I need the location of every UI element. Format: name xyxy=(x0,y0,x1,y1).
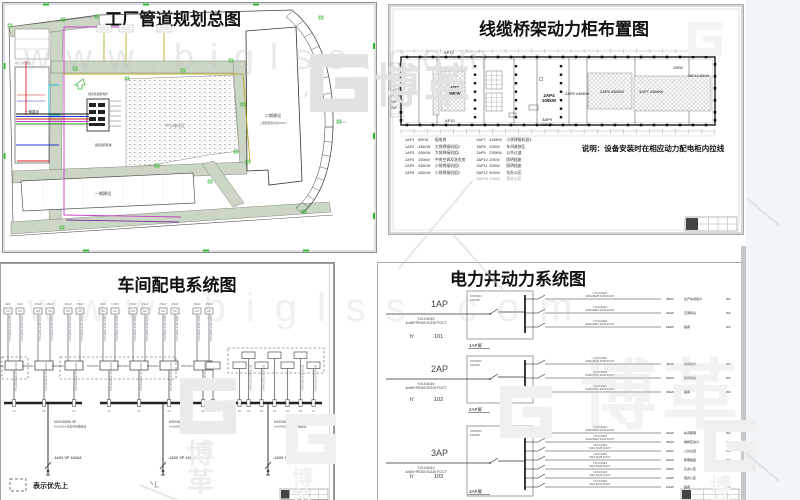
svg-text:103: 103 xyxy=(434,474,443,480)
svg-text:W6: W6 xyxy=(726,476,731,480)
svg-text:表示优先上: 表示优先上 xyxy=(32,481,68,490)
svg-text:W2: W2 xyxy=(726,376,731,380)
svg-text:In=1600A 密集母线槽连接: In=1600A 密集母线槽连接 xyxy=(274,425,306,429)
svg-text:4x400+PE400 SC100 FC/CT: 4x400+PE400 SC100 FC/CT xyxy=(405,386,446,390)
svg-text:YJV-4x25+1x16 SC40: YJV-4x25+1x16 SC40 xyxy=(8,315,12,341)
svg-text:45kW: 45kW xyxy=(666,362,674,366)
svg-text:NSX630N: NSX630N xyxy=(470,429,482,433)
vertical-scrollbar[interactable] xyxy=(741,246,746,500)
svg-text:YJV-4x25+1x16 SC40: YJV-4x25+1x16 SC40 xyxy=(68,315,72,341)
svg-text:In=1600A 密集母线槽连接: In=1600A 密集母线槽连接 xyxy=(54,425,86,429)
svg-text:2AP5 436KW: 2AP5 436KW xyxy=(565,91,589,96)
svg-text:YJV-0.6/1kV: YJV-0.6/1kV xyxy=(593,319,608,323)
svg-text:W2: W2 xyxy=(247,410,251,413)
svg-text:YJV-4x120+1x70 SC100: YJV-4x120+1x70 SC100 xyxy=(139,362,143,391)
svg-text:18kW: 18kW xyxy=(666,325,674,329)
power-shaft-shapes: 1APYJV-0.6/1kV4x400+PE400 SC100 FC/CTh'1… xyxy=(386,291,739,500)
svg-text:4x50+PE25 SC50 FC/CT: 4x50+PE25 SC50 FC/CT xyxy=(585,294,614,298)
svg-text:4x400+PE400 SC100 FC/CT: 4x400+PE400 SC100 FC/CT xyxy=(405,321,446,325)
svg-text:YJV-4x25+1x16 SC40: YJV-4x25+1x16 SC40 xyxy=(163,315,167,341)
svg-text:3AP7 436KW: 3AP7 436KW xyxy=(639,89,663,94)
svg-text:W1: W1 xyxy=(107,410,111,413)
svg-text:综合管廊配电间: 综合管廊配电间 xyxy=(88,92,108,96)
svg-text:TX5.0: TX5.0 xyxy=(303,90,309,98)
svg-text:3AP13 40KW: 3AP13 40KW xyxy=(688,74,710,78)
svg-text:W6: W6 xyxy=(299,410,303,413)
svg-text:h': h' xyxy=(410,334,414,340)
svg-text:-1600 3P 1600A: -1600 3P 1600A xyxy=(53,455,82,460)
svg-text:YJV-0.6/1kV: YJV-0.6/1kV xyxy=(593,305,608,309)
svg-text:h': h' xyxy=(410,474,414,480)
svg-text:YJV-4x25+1x16 SC40: YJV-4x25+1x16 SC40 xyxy=(145,315,149,341)
svg-text:4x25+PE16 SC32 FC/CT: 4x25+PE16 SC32 FC/CT xyxy=(585,437,614,441)
svg-text:一期建设: 一期建设 xyxy=(95,190,111,196)
svg-text:公共过道: 公共过道 xyxy=(684,448,696,453)
svg-text:25kW: 25kW xyxy=(141,302,149,306)
svg-text:YJV-4x120+1x70 SC100: YJV-4x120+1x70 SC100 xyxy=(109,362,113,391)
svg-text:20kW: 20kW xyxy=(666,458,674,462)
svg-text:备用: 备用 xyxy=(684,324,690,329)
svg-text:新风机房: 新风机房 xyxy=(684,375,696,380)
legend-cell: 436KW xyxy=(418,170,435,177)
svg-text:2AP: 2AP xyxy=(431,364,448,374)
svg-text:630A/3P: 630A/3P xyxy=(470,363,480,367)
svg-text:W4: W4 xyxy=(201,410,205,413)
screenshot-root: 工厂管道规划总图 中心绿化区一期建设地下室范围线二期建设二期配套用房约750m²… xyxy=(0,0,800,500)
svg-text:照明插座: 照明插座 xyxy=(684,457,696,462)
svg-text:20kW: 20kW xyxy=(666,449,674,453)
svg-text:W1: W1 xyxy=(726,297,731,301)
svg-text:NSX1600N 3P: NSX1600N 3P xyxy=(54,420,77,424)
cable-tray-drawing: 线缆桥架动力柜布置图 说明：设备安装时在相应动力配电柜内拉线 AP11AP101… xyxy=(389,5,743,234)
svg-text:NSX1600N 3P: NSX1600N 3P xyxy=(169,420,192,424)
svg-text:30kW: 30kW xyxy=(666,431,674,435)
svg-text:YJV-4x120+1x70 SC100: YJV-4x120+1x70 SC100 xyxy=(14,362,18,391)
svg-text:4x25+PE16 SC32 FC/CT: 4x25+PE16 SC32 FC/CT xyxy=(585,322,614,326)
svg-text:25kW: 25kW xyxy=(666,440,674,444)
svg-text:NSX250N: NSX250N xyxy=(52,364,64,368)
svg-text:1AP1: 1AP1 xyxy=(391,88,399,92)
svg-text:W7: W7 xyxy=(726,485,731,489)
svg-text:5x10 SC20 FC/CT: 5x10 SC20 FC/CT xyxy=(589,473,611,477)
svg-text:-1600 3P 160A: -1600 3P 160A xyxy=(168,455,195,460)
distribution-title: 车间配电系统图 xyxy=(118,275,237,295)
svg-text:6kW: 6kW xyxy=(17,302,23,306)
svg-text:一期建设: 一期建设 xyxy=(25,109,39,114)
svg-text:102: 102 xyxy=(434,397,443,403)
svg-text:NSX250N: NSX250N xyxy=(181,364,193,368)
svg-text:2AP6 436KW: 2AP6 436KW xyxy=(600,89,624,94)
svg-text:YJV-0.6/1kV: YJV-0.6/1kV xyxy=(593,479,608,483)
panel-workshop-distribution: 车间配电系统图 6kWYJV-4x25+1x16 SC406kWYJV-4x25… xyxy=(0,262,335,500)
svg-text:30kW: 30kW xyxy=(666,311,674,315)
legend-col-right: 3AP7436KW小袋焊接机组33AP820KW车间维修区3AP9235KW公共… xyxy=(476,137,531,183)
svg-text:YJV-0.6/1kV: YJV-0.6/1kV xyxy=(593,425,608,429)
svg-text:YJV-4x25+1x16 SC40: YJV-4x25+1x16 SC40 xyxy=(197,315,201,341)
svg-text:中心绿化区: 中心绿化区 xyxy=(165,122,185,128)
legend-cell: 小袋焊接机组2 xyxy=(435,170,460,177)
svg-text:5x16 SC25 FC/CT: 5x16 SC25 FC/CT xyxy=(589,455,611,459)
svg-text:In=1600A 密集母线槽连接: In=1600A 密集母线槽连接 xyxy=(169,425,201,429)
svg-text:YJV-0.6/1kV: YJV-0.6/1kV xyxy=(593,470,608,474)
distribution-shapes: 6kWYJV-4x25+1x16 SC406kWYJV-4x25+1x16 SC… xyxy=(0,263,334,500)
svg-text:空调机房: 空调机房 xyxy=(684,310,696,315)
svg-text:W2: W2 xyxy=(137,410,141,413)
svg-text:W1: W1 xyxy=(12,410,16,413)
svg-text:YJV-4x25+1x16 SC40: YJV-4x25+1x16 SC40 xyxy=(103,315,107,341)
svg-text:4x35+PE16 SC40 FC/CT: 4x35+PE16 SC40 FC/CT xyxy=(585,373,614,377)
svg-text:W3: W3 xyxy=(726,325,731,329)
svg-text:W4: W4 xyxy=(726,458,731,462)
svg-text:YJV-4x25+1x16 SC40: YJV-4x25+1x16 SC40 xyxy=(115,315,119,341)
legend-cell: 西办公区 xyxy=(506,176,521,183)
svg-text:W3: W3 xyxy=(72,410,76,413)
svg-text:101: 101 xyxy=(434,334,443,340)
svg-text:25kW: 25kW xyxy=(205,302,213,306)
svg-text:25kW: 25kW xyxy=(171,302,179,306)
svg-text:W2: W2 xyxy=(726,440,731,444)
svg-text:15kW: 15kW xyxy=(666,390,674,394)
svg-text:W3: W3 xyxy=(726,390,731,394)
legend-cell: 3AP13 xyxy=(476,176,489,183)
svg-text:1AP2: 1AP2 xyxy=(447,85,459,90)
svg-text:W3: W3 xyxy=(167,410,171,413)
distribution-diagram: 车间配电系统图 6kWYJV-4x25+1x16 SC406kWYJV-4x25… xyxy=(0,263,334,500)
power-shaft-diagram: 电力井动力系统图 1APYJV-0.6/1kV4x400+PE400 SC100… xyxy=(378,263,742,500)
site-plan-drawing: 工厂管道规划总图 中心绿化区一期建设地下室范围线二期建设二期配套用房约750m²… xyxy=(3,3,376,252)
svg-text:25kW: 25kW xyxy=(46,302,54,306)
svg-text:生产车间动力: 生产车间动力 xyxy=(684,296,702,301)
svg-text:4x35+PE16 SC40 FC/CT: 4x35+PE16 SC40 FC/CT xyxy=(585,308,614,312)
legend-row: 2AP6436KW小袋焊接机组2 xyxy=(405,170,465,177)
svg-text:25kW: 25kW xyxy=(64,302,72,306)
svg-text:4x25+PE16 SC32 FC/CT: 4x25+PE16 SC32 FC/CT xyxy=(585,387,614,391)
svg-text:100kW: 100kW xyxy=(542,98,557,103)
panel-cable-tray-layout: 线缆桥架动力柜布置图 说明：设备安装时在相应动力配电柜内拉线 AP11AP101… xyxy=(388,4,744,235)
svg-text:8kW: 8kW xyxy=(100,302,106,306)
svg-text:10kW: 10kW xyxy=(666,485,674,489)
svg-text:3AP: 3AP xyxy=(431,448,448,458)
page-background-strip xyxy=(746,0,800,500)
svg-text:YJV-0.6/1kV: YJV-0.6/1kV xyxy=(593,356,608,360)
legend-cell: 2AP6 xyxy=(405,170,418,177)
svg-text:车间照明: 车间照明 xyxy=(684,430,696,435)
svg-text:W2: W2 xyxy=(42,410,46,413)
svg-text:25kW: 25kW xyxy=(129,302,137,306)
svg-text:货运装卸区域: 货运装卸区域 xyxy=(95,143,112,147)
svg-text:二期建设: 二期建设 xyxy=(265,112,281,118)
svg-text:XL-1D: XL-1D xyxy=(339,120,346,124)
svg-text:AP11: AP11 xyxy=(444,50,454,55)
svg-text:4.5kW: 4.5kW xyxy=(111,302,119,306)
svg-text:W2: W2 xyxy=(726,311,731,315)
svg-text:NSX630N: NSX630N xyxy=(470,359,482,363)
svg-text:W5: W5 xyxy=(211,410,215,413)
svg-text:-1600 3P 1250A: -1600 3P 1250A xyxy=(273,455,302,460)
svg-text:W1: W1 xyxy=(726,431,731,435)
panel-site-plan: 工厂管道规划总图 中心绿化区一期建设地下室范围线二期建设二期配套用房约750m²… xyxy=(2,2,377,253)
svg-text:YJV-4x25+1x16 SC40: YJV-4x25+1x16 SC40 xyxy=(38,315,42,341)
svg-text:W5: W5 xyxy=(286,410,290,413)
svg-text:25kW: 25kW xyxy=(76,302,84,306)
svg-text:AP10: AP10 xyxy=(445,118,456,123)
svg-text:地下室范围线: 地下室范围线 xyxy=(15,61,31,65)
svg-text:备用: 备用 xyxy=(684,484,690,489)
svg-text:235KW: 235KW xyxy=(540,122,553,127)
svg-text:W7: W7 xyxy=(312,410,316,413)
svg-text:5x10 SC20 FC/CT: 5x10 SC20 FC/CT xyxy=(589,482,611,486)
svg-text:4x35+PE16 SC40 FC/CT: 4x35+PE16 SC40 FC/CT xyxy=(585,428,614,432)
svg-text:W4: W4 xyxy=(273,410,277,413)
cable-tray-shapes: AP11AP101AP2436KW2AP4100kW2AP5 436KW2AP6… xyxy=(390,6,742,233)
svg-text:YJV-4x120+1x70 SC100: YJV-4x120+1x70 SC100 xyxy=(262,364,265,391)
svg-text:NSX250N: NSX250N xyxy=(147,364,159,368)
svg-text:NSX250N: NSX250N xyxy=(87,364,99,368)
svg-text:W3: W3 xyxy=(726,449,731,453)
svg-text:西办公区: 西办公区 xyxy=(684,475,696,480)
svg-text:15kW: 15kW xyxy=(666,467,674,471)
panel-power-shaft-system: 电力井动力系统图 1APYJV-0.6/1kV4x400+PE400 SC100… xyxy=(377,262,743,500)
svg-text:YJV-4x120+1x70 SC100: YJV-4x120+1x70 SC100 xyxy=(44,362,48,391)
svg-text:5x10 SC20 FC/CT: 5x10 SC20 FC/CT xyxy=(589,464,611,468)
svg-text:YJV-4x25+1x16 SC40: YJV-4x25+1x16 SC40 xyxy=(209,315,213,341)
svg-text:YJV-4x25+1x16 SC40: YJV-4x25+1x16 SC40 xyxy=(20,315,24,341)
legend-row: 3AP1340KW西办公区 xyxy=(476,176,531,183)
svg-text:25kW: 25kW xyxy=(34,302,42,306)
svg-text:YJV-4x25+1x16 SC40: YJV-4x25+1x16 SC40 xyxy=(133,315,137,341)
svg-text:NSX630N: NSX630N xyxy=(470,294,482,298)
svg-text:NSX1600N 3P: NSX1600N 3P xyxy=(274,420,297,424)
installation-note: 说明：设备安装时在相应动力配电柜内拉线 xyxy=(582,143,725,153)
svg-text:NSX250N: NSX250N xyxy=(117,364,129,368)
site-plan-shapes: 中心绿化区一期建设地下室范围线二期建设二期配套用房约750m²一期建设综合管廊配… xyxy=(4,4,375,251)
svg-text:W1: W1 xyxy=(238,410,242,413)
svg-text:YJV-0.6/1kV: YJV-0.6/1kV xyxy=(593,370,608,374)
svg-text:二期配套用房约750m²: 二期配套用房约750m² xyxy=(259,121,287,125)
svg-text:12kW: 12kW xyxy=(666,476,674,480)
svg-text:25kW: 25kW xyxy=(193,302,201,306)
svg-text:YJV-4x120+1x70 SC100: YJV-4x120+1x70 SC100 xyxy=(74,362,78,391)
legend-cell: 40KW xyxy=(489,176,506,183)
svg-text:5x16 SC25 FC/CT: 5x16 SC25 FC/CT xyxy=(589,446,611,450)
svg-text:维修区动力: 维修区动力 xyxy=(684,439,699,444)
svg-text:东办公区: 东办公区 xyxy=(684,466,696,471)
svg-text:30kW: 30kW xyxy=(666,376,674,380)
svg-text:1AP: 1AP xyxy=(431,299,448,309)
svg-text:备用: 备用 xyxy=(684,389,690,394)
svg-text:630A/3P: 630A/3P xyxy=(470,433,480,437)
svg-text:YJV-0.6/1kV: YJV-0.6/1kV xyxy=(593,461,608,465)
svg-text:YJV-4x120+1x70 SC100: YJV-4x120+1x70 SC100 xyxy=(301,364,304,391)
svg-text:YJV-0.6/1kV: YJV-0.6/1kV xyxy=(593,434,608,438)
svg-text:2AP: 2AP xyxy=(391,106,398,110)
svg-text:YJV-4x25+1x16 SC40: YJV-4x25+1x16 SC40 xyxy=(175,315,179,341)
svg-text:W1: W1 xyxy=(726,362,731,366)
svg-text:436KW: 436KW xyxy=(445,91,461,96)
svg-text:YJV-0.6/1kV: YJV-0.6/1kV xyxy=(593,443,608,447)
svg-text:YJV-0.6/1kV: YJV-0.6/1kV xyxy=(593,291,608,295)
svg-text:45kW: 45kW xyxy=(666,297,674,301)
power-shaft-title: 电力井动力系统图 xyxy=(450,269,586,289)
svg-text:h': h' xyxy=(410,397,414,403)
svg-text:4x50+PE25 SC50 FC/CT: 4x50+PE25 SC50 FC/CT xyxy=(585,359,614,363)
svg-text:YJV-4x25+1x16 SC40: YJV-4x25+1x16 SC40 xyxy=(50,315,54,341)
cabinet-legend: 1AP150KW配电房1AP2436KW大袋焊接机组21AP3436KW大袋焊接… xyxy=(405,137,531,183)
svg-text:1AP: 1AP xyxy=(391,100,398,104)
svg-text:20KW: 20KW xyxy=(673,66,683,70)
svg-text:车间动力: 车间动力 xyxy=(684,361,696,366)
svg-text:W3: W3 xyxy=(260,410,264,413)
svg-text:YJV-4x120+1x70 SC100: YJV-4x120+1x70 SC100 xyxy=(314,364,317,391)
svg-text:W5: W5 xyxy=(726,467,731,471)
svg-text:YJV-0.6/1kV: YJV-0.6/1kV xyxy=(593,452,608,456)
svg-text:YJV-4x120+1x70 SC100: YJV-4x120+1x70 SC100 xyxy=(169,362,173,391)
svg-text:YJV-4x120+1x70 SC100: YJV-4x120+1x70 SC100 xyxy=(249,364,252,391)
svg-text:1AP屏: 1AP屏 xyxy=(469,343,483,349)
svg-text:6kW: 6kW xyxy=(5,302,11,306)
svg-text:630A/3P: 630A/3P xyxy=(470,298,480,302)
cable-tray-title: 线缆桥架动力柜布置图 xyxy=(479,19,649,39)
svg-text:25kW: 25kW xyxy=(159,302,167,306)
svg-text:YJV-0.6/1kV: YJV-0.6/1kV xyxy=(593,384,608,388)
legend-col-left: 1AP150KW配电房1AP2436KW大袋焊接机组21AP3436KW大袋焊接… xyxy=(405,137,465,183)
svg-text:2AP屏: 2AP屏 xyxy=(469,407,483,413)
svg-text:YJV-4x25+1x16 SC40: YJV-4x25+1x16 SC40 xyxy=(80,315,84,341)
